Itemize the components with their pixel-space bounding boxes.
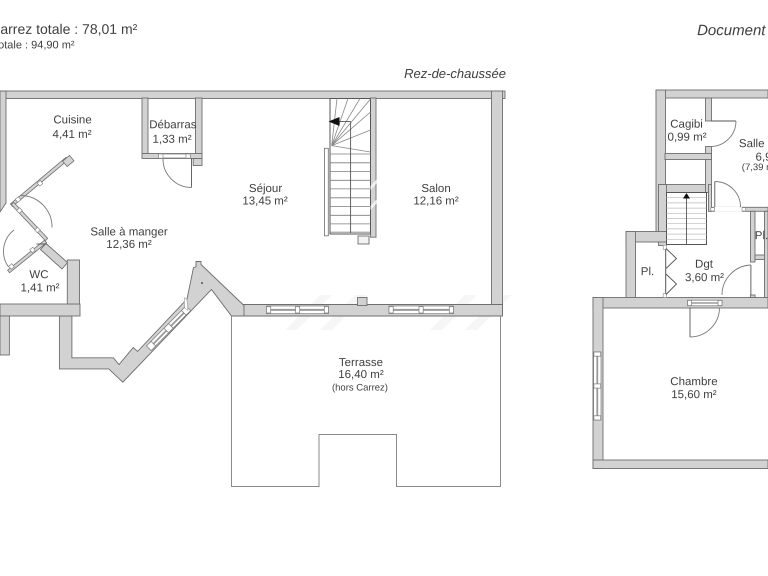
svg-text:1,33 m²: 1,33 m² [153,134,192,146]
svg-text:Document non contractuel: Document non contractuel [697,22,768,39]
svg-text:Séjour: Séjour [249,183,282,195]
svg-text:Surface Carrez totale : 78,01: Surface Carrez totale : 78,01 m² [0,21,138,37]
svg-text:12,36 m²: 12,36 m² [106,239,152,251]
svg-text:12,16 m²: 12,16 m² [413,196,459,208]
svg-text:Pl.: Pl. [755,230,768,242]
svg-text:Salon: Salon [421,183,450,195]
svg-text:4,41 m²: 4,41 m² [53,129,92,141]
svg-text:Cuisine: Cuisine [53,114,91,126]
svg-text:Surface totale : 94,90 m²: Surface totale : 94,90 m² [0,39,75,51]
svg-text:16,40 m²: 16,40 m² [338,369,384,381]
svg-text:Pl.: Pl. [641,266,654,278]
svg-text:Dgt: Dgt [695,259,714,271]
svg-text:Salle de bains: Salle de bains [739,138,768,150]
svg-text:3,60 m²: 3,60 m² [685,272,724,284]
svg-text:13,45 m²: 13,45 m² [242,195,288,207]
svg-text:Salle à manger: Salle à manger [90,226,168,238]
svg-text:Cagibi: Cagibi [670,119,703,131]
svg-text:Chambre: Chambre [670,376,717,388]
svg-text:0,99 m²: 0,99 m² [668,132,707,144]
svg-text:Terrasse: Terrasse [339,357,383,369]
svg-text:(7,39 m² au sol): (7,39 m² au sol) [742,162,768,173]
svg-text:(hors Carrez): (hors Carrez) [332,382,388,393]
svg-text:1,41 m²: 1,41 m² [20,282,59,294]
svg-text:15,60 m²: 15,60 m² [671,389,717,401]
svg-text:Débarras: Débarras [149,119,197,131]
svg-text:WC: WC [29,269,48,281]
svg-text:Rez-de-chaussée: Rez-de-chaussée [404,66,506,81]
